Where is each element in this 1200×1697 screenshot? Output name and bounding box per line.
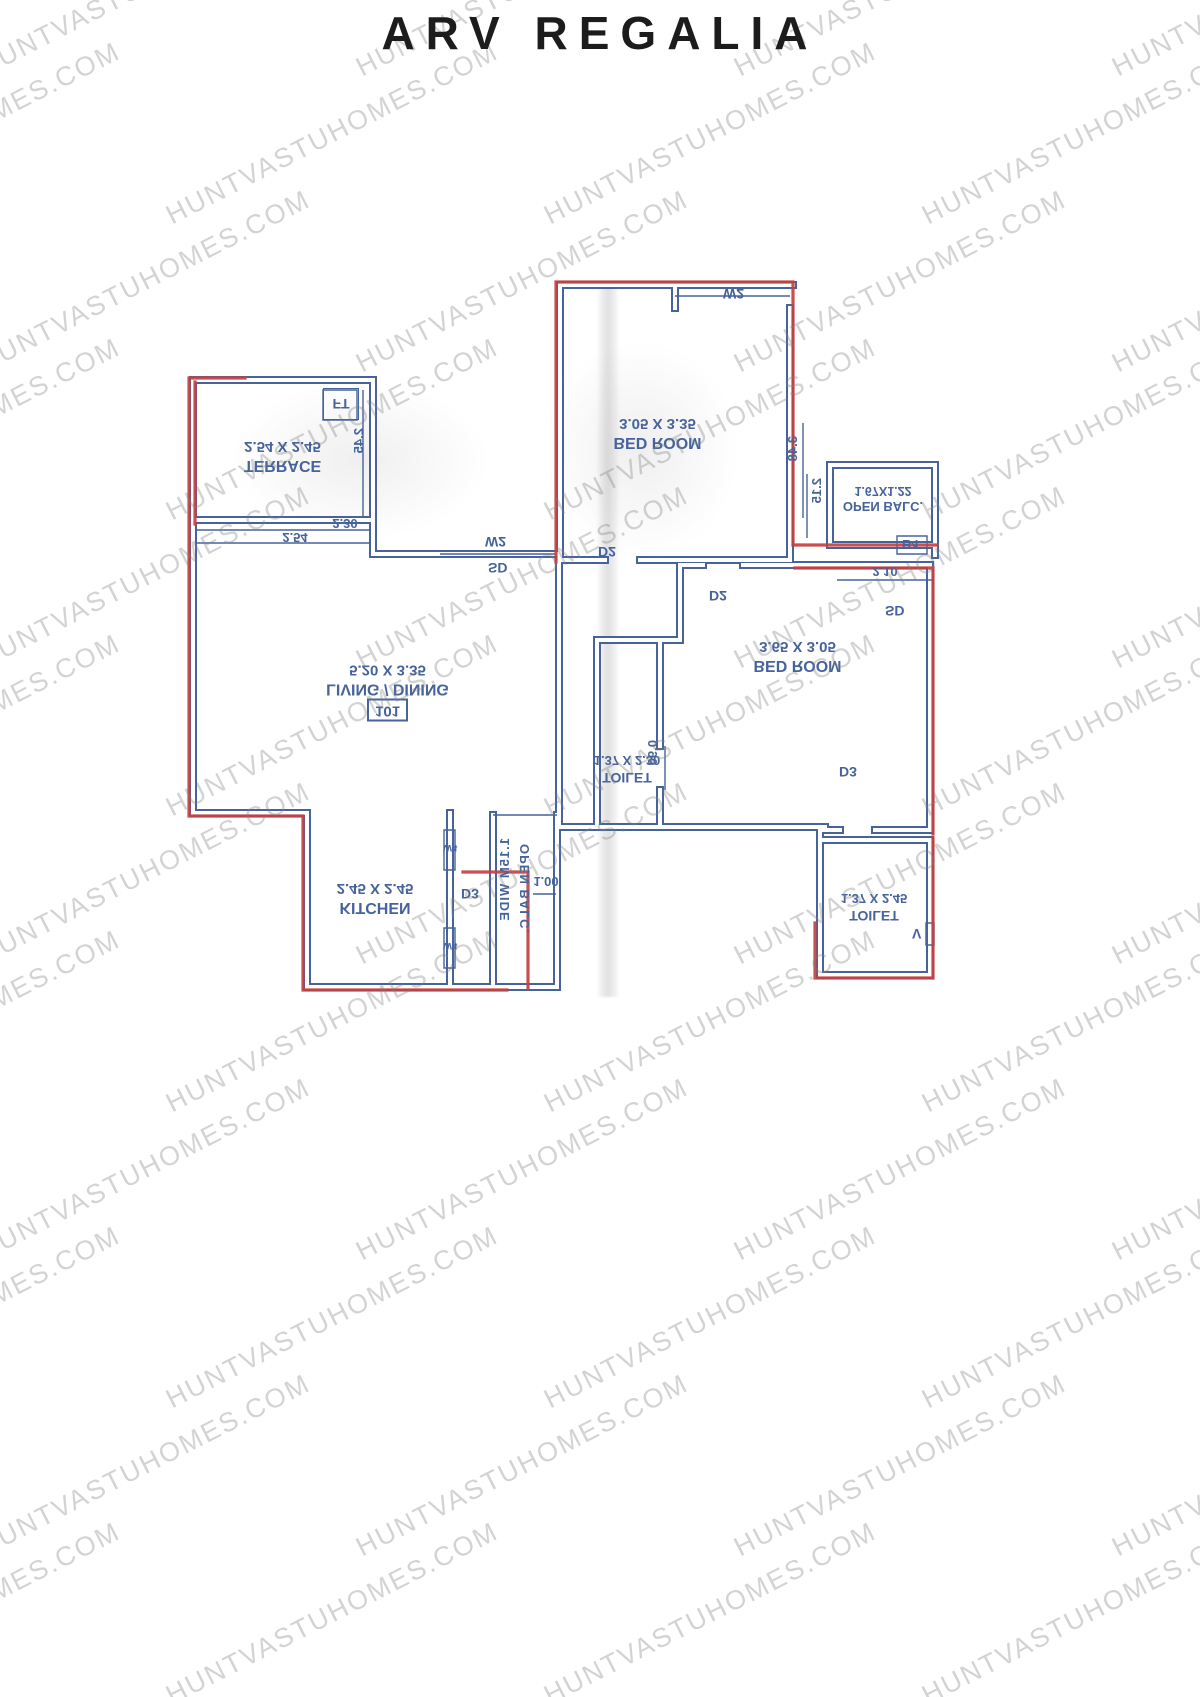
watermark-text: HUNTVASTUHOMES.COM: [1107, 480, 1200, 675]
dim-terrace-height: 2.45: [351, 428, 366, 453]
watermark-text: HUNTVASTUHOMES.COM: [917, 36, 1200, 231]
watermark-text: HUNTVASTUHOMES.COM: [1107, 1072, 1200, 1267]
watermark-text: HUNTVASTUHOMES.COM: [1107, 1368, 1200, 1563]
watermark-text: HUNTVASTUHOMES.COM: [917, 332, 1200, 527]
sliding-door-label-left: SD: [488, 560, 507, 576]
floor-plan: TERRACE 2.54 X 2.45 BED ROOM 3.05 X 3.35…: [185, 278, 945, 994]
watermark-text: HUNTVASTUHOMES.COM: [0, 628, 125, 823]
watermark-text: HUNTVASTUHOMES.COM: [161, 36, 503, 231]
dim-terrace-width-outer: 2.54: [255, 530, 335, 545]
window-label-w2-left: W2: [485, 534, 506, 550]
watermark-text: HUNTVASTUHOMES.COM: [729, 1072, 1071, 1267]
room-label-bedroom-top: BED ROOM 3.05 X 3.35: [590, 413, 725, 452]
watermark-text: HUNTVASTUHOMES.COM: [0, 332, 125, 527]
room-name: TOILET: [593, 768, 661, 786]
dim-terrace-width: 2.30: [305, 516, 385, 531]
page: ARV REGALIA HUNTVASTUHOMES.COMHUNTVASTUH…: [0, 0, 1200, 1697]
room-name: OPEN BALC.: [833, 498, 933, 514]
dim-bed-side: 3.48: [785, 436, 800, 461]
ft-label: FT: [332, 396, 349, 412]
watermark-text: HUNTVASTUHOMES.COM: [729, 1368, 1071, 1563]
room-dims: 2.54 X 2.45: [215, 436, 350, 455]
watermark-text: HUNTVASTUHOMES.COM: [539, 1220, 881, 1415]
watermark-text: HUNTVASTUHOMES.COM: [1107, 184, 1200, 379]
room-label-terrace: TERRACE 2.54 X 2.45: [215, 436, 350, 475]
door-label-d3-kitchen: D3: [461, 886, 479, 902]
sliding-door-label-right: SD: [885, 603, 904, 619]
unit-number: 101: [367, 699, 408, 722]
room-dims: 3.65 X 3.05: [730, 636, 865, 655]
room-dims: 3.05 X 3.35: [590, 413, 725, 432]
room-name: LIVING / DINING: [320, 679, 455, 699]
watermark-text: HUNTVASTUHOMES.COM: [539, 36, 881, 231]
dim-balc-width: 2.10: [840, 564, 930, 579]
ft-box: FT: [323, 388, 359, 420]
room-label-living-dining: 101 LIVING / DINING 5.20 X 3.35: [320, 660, 455, 725]
watermark-text: HUNTVASTUHOMES.COM: [0, 924, 125, 1119]
door-label-d2-a: D2: [598, 544, 616, 560]
watermark-text: HUNTVASTUHOMES.COM: [161, 1220, 503, 1415]
room-label-bedroom-right: BED ROOM 3.65 X 3.05: [730, 636, 865, 675]
room-label-kitchen: KITCHEN 2.45 X 2.45: [310, 878, 440, 917]
watermark-text: HUNTVASTUHOMES.COM: [0, 1516, 125, 1697]
window-label-w4-a: W4: [443, 842, 457, 853]
window-label-w2-top: W2: [723, 286, 744, 302]
door-label-d3-bedroom: D3: [839, 764, 857, 780]
watermark-text: HUNTVASTUHOMES.COM: [917, 1220, 1200, 1415]
room-name: BED ROOM: [590, 432, 725, 452]
dim-balc-bottom-width: 1.00: [521, 874, 571, 889]
watermark-text: HUNTVASTUHOMES.COM: [917, 1516, 1200, 1697]
room-name: BED ROOM: [730, 655, 865, 675]
watermark-text: HUNTVASTUHOMES.COM: [0, 1368, 315, 1563]
ventilator-label: V: [912, 926, 921, 942]
room-name: TOILET: [833, 906, 915, 924]
watermark-text: HUNTVASTUHOMES.COM: [1107, 776, 1200, 971]
dim-balc-height: 2.15: [809, 478, 824, 503]
watermark-text: HUNTVASTUHOMES.COM: [0, 36, 125, 231]
watermark-text: HUNTVASTUHOMES.COM: [0, 1220, 125, 1415]
watermark-text: HUNTVASTUHOMES.COM: [539, 1516, 881, 1697]
watermark-text: HUNTVASTUHOMES.COM: [917, 628, 1200, 823]
room-dims: 5.20 X 3.35: [320, 660, 455, 679]
room-dims: 2.45 X 2.45: [310, 878, 440, 897]
window-label-w4-b: W4: [443, 940, 457, 951]
room-name: TERRACE: [215, 455, 350, 475]
room-label-open-balc-bottom-name: OPEN BALC.: [517, 844, 532, 979]
room-dims: 1.37 X 2.45: [833, 890, 915, 906]
room-label-open-balc-bottom-width: 1.15M WIDE: [497, 838, 512, 973]
dim-toilet-door: 0.90: [645, 740, 660, 765]
b4-label: B4: [902, 537, 919, 552]
watermark-text: HUNTVASTUHOMES.COM: [351, 1368, 693, 1563]
room-label-toilet-right: TOILET 1.37 X 2.45: [833, 890, 915, 924]
watermark-text: HUNTVASTUHOMES.COM: [917, 924, 1200, 1119]
room-dims: 1.67X1.22: [833, 482, 933, 498]
room-label-open-balc-top: OPEN BALC. 1.67X1.22: [833, 482, 933, 514]
watermark-text: HUNTVASTUHOMES.COM: [351, 1072, 693, 1267]
watermark-text: HUNTVASTUHOMES.COM: [161, 1516, 503, 1697]
door-label-d2-b: D2: [709, 588, 727, 604]
watermark-text: HUNTVASTUHOMES.COM: [0, 1072, 315, 1267]
page-title: ARV REGALIA: [0, 6, 1200, 60]
room-name: KITCHEN: [310, 897, 440, 917]
